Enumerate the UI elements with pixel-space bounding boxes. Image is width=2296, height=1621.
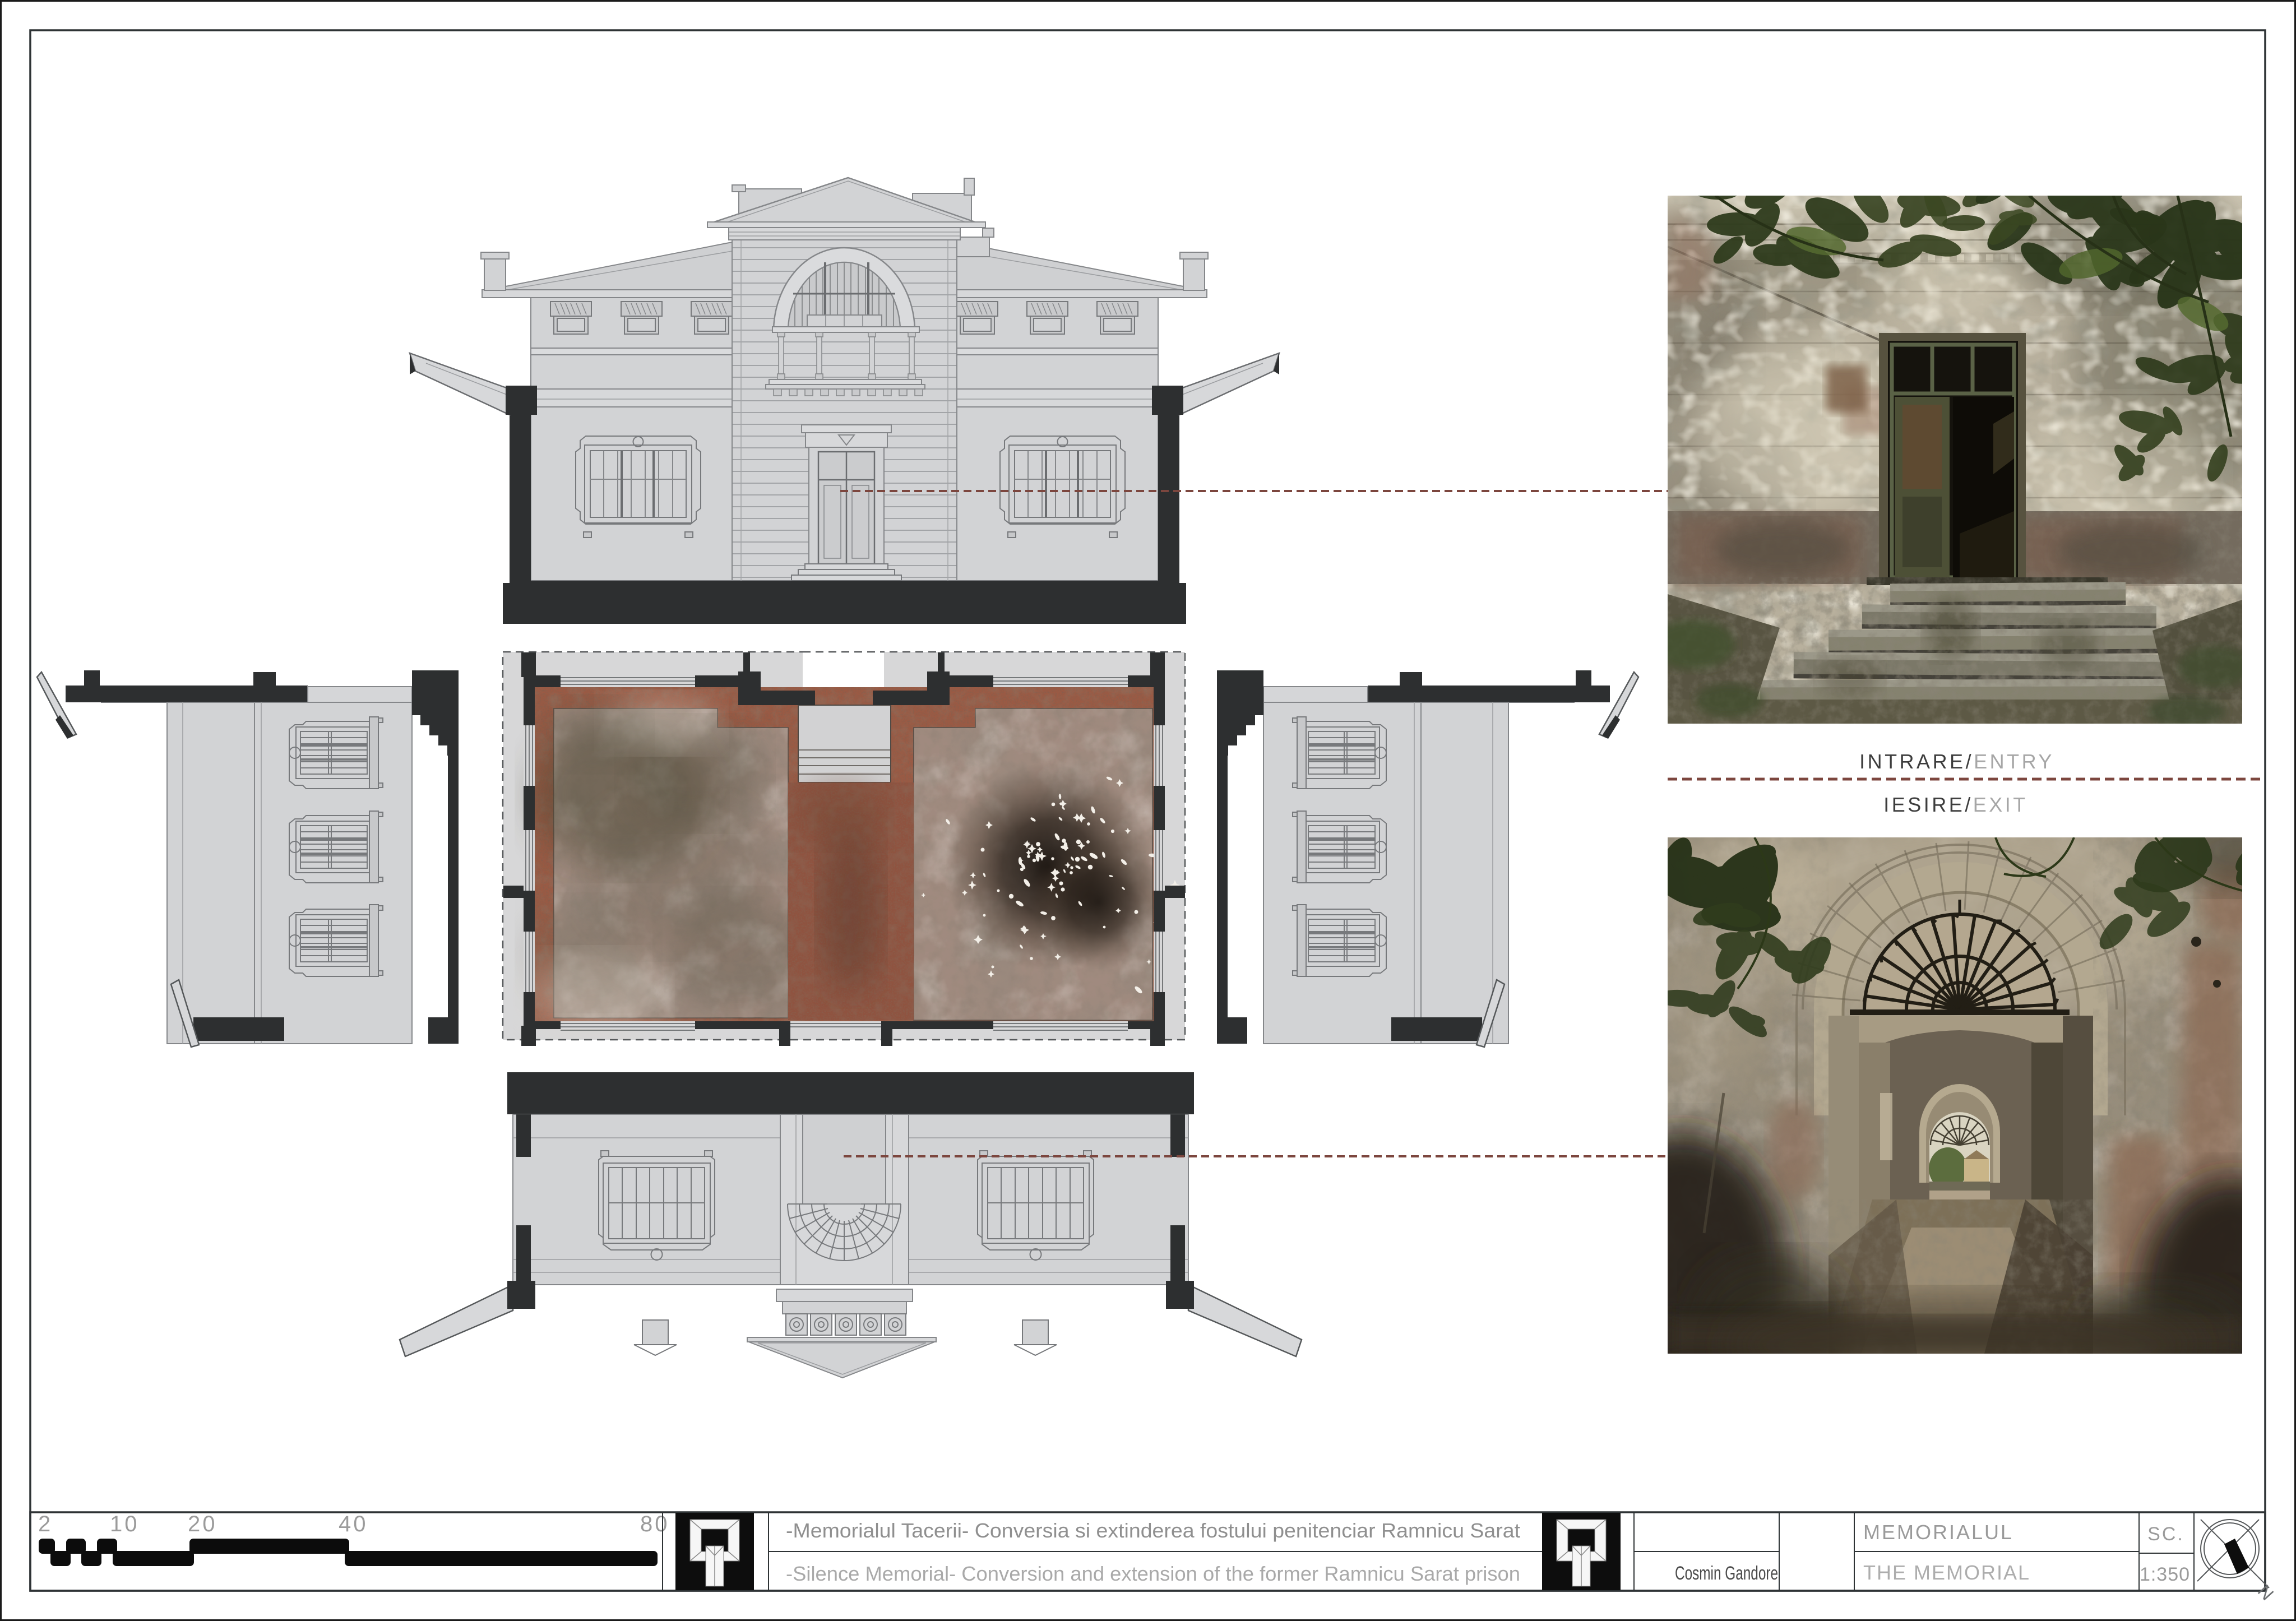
svg-text:SC.: SC. [2147, 1523, 2184, 1545]
svg-text:Cosmin Gandore: Cosmin Gandore [1675, 1563, 1778, 1584]
svg-text:THE MEMORIAL: THE MEMORIAL [1863, 1561, 2030, 1584]
svg-text:40: 40 [339, 1512, 368, 1536]
svg-text:10: 10 [110, 1512, 140, 1536]
svg-text:1:350: 1:350 [2140, 1564, 2190, 1585]
svg-text:MEMORIALUL: MEMORIALUL [1863, 1521, 2013, 1544]
svg-text:2: 2 [38, 1512, 53, 1536]
svg-text:-Memorialul Tacerii- Conversia: -Memorialul Tacerii- Conversia si extind… [786, 1519, 1520, 1542]
svg-text:20: 20 [188, 1512, 217, 1536]
svg-text:80: 80 [640, 1512, 670, 1536]
svg-text:-Silence Memorial- Conversion: -Silence Memorial- Conversion and extens… [786, 1562, 1520, 1585]
svg-text:IESIRE/EXIT: IESIRE/EXIT [1883, 793, 2028, 816]
svg-text:INTRARE/ENTRY: INTRARE/ENTRY [1859, 750, 2054, 773]
